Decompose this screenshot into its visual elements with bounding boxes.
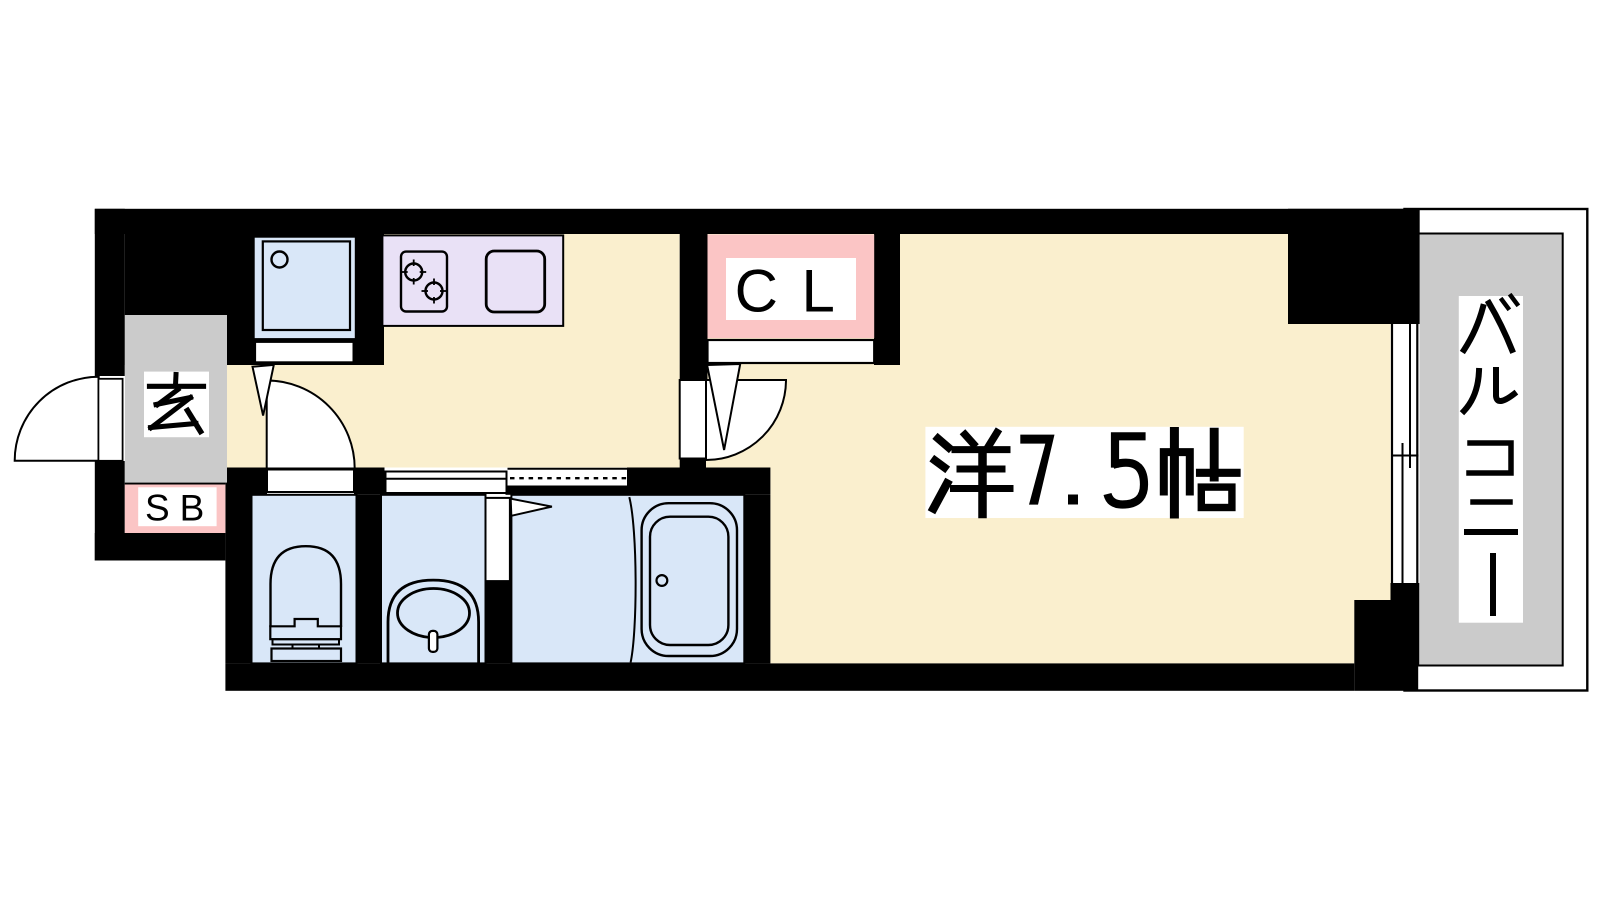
svg-text:CL: CL <box>735 257 859 324</box>
svg-text:SB: SB <box>145 488 214 529</box>
